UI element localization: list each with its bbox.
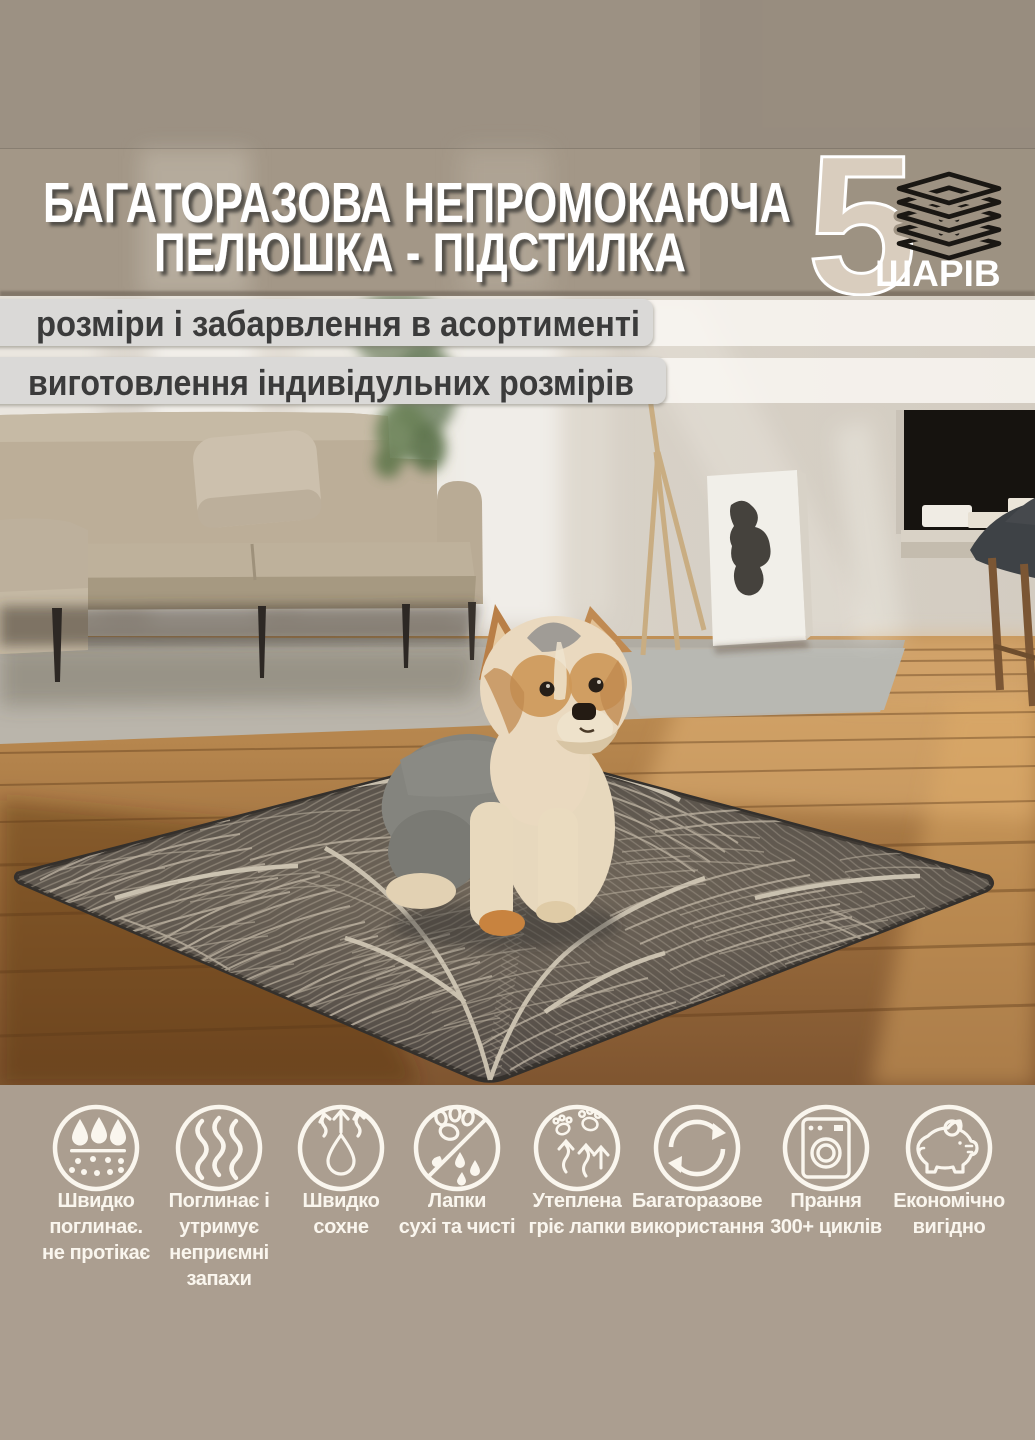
svg-text:ПЕЛЮШКА - ПІДСТИЛКА: ПЕЛЮШКА - ПІДСТИЛКА [154, 221, 686, 283]
svg-text:розміри і забарвлення в асорти: розміри і забарвлення в асортименті [36, 303, 640, 344]
svg-text:виготовлення індивідульних роз: виготовлення індивідульних розмірів [28, 362, 634, 403]
